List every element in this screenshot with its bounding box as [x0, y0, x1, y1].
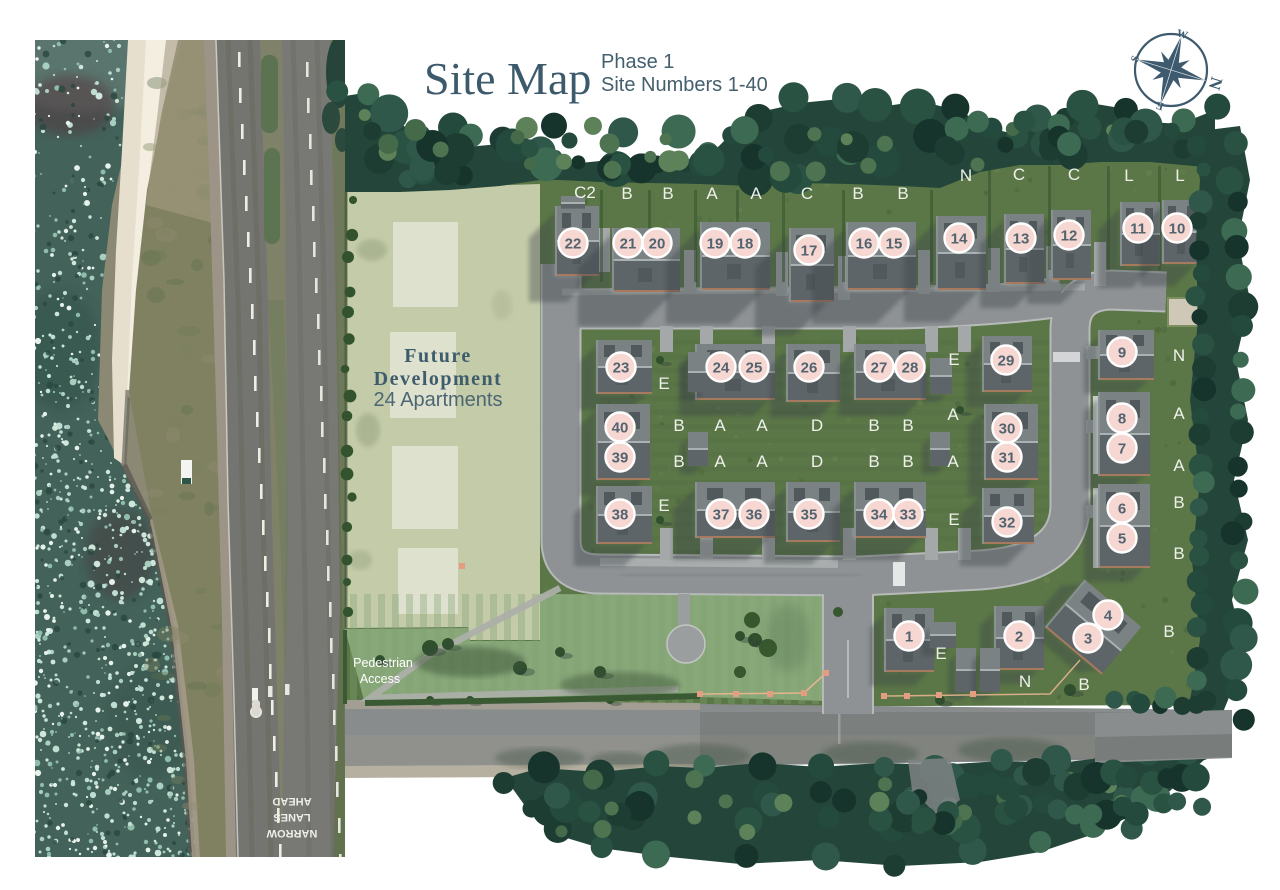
- svg-text:C2: C2: [574, 183, 596, 202]
- svg-text:8: 8: [1118, 411, 1126, 428]
- svg-text:24: 24: [713, 360, 730, 377]
- svg-text:Access: Access: [360, 672, 400, 686]
- svg-text:N: N: [1019, 672, 1031, 691]
- svg-text:E: E: [658, 496, 669, 515]
- svg-text:18: 18: [737, 236, 754, 253]
- svg-text:B: B: [1173, 544, 1184, 563]
- svg-text:16: 16: [856, 236, 873, 253]
- svg-text:30: 30: [999, 421, 1016, 438]
- svg-text:B: B: [897, 184, 908, 203]
- svg-text:B: B: [673, 416, 684, 435]
- svg-text:B: B: [902, 452, 913, 471]
- svg-text:B: B: [1078, 675, 1089, 694]
- svg-text:B: B: [1163, 622, 1174, 641]
- svg-text:A: A: [750, 184, 762, 203]
- svg-text:E: E: [935, 644, 946, 663]
- svg-text:11: 11: [1130, 221, 1146, 238]
- svg-text:C: C: [801, 184, 813, 203]
- svg-text:A: A: [756, 452, 768, 471]
- svg-text:25: 25: [746, 360, 763, 377]
- svg-text:5: 5: [1118, 531, 1126, 548]
- svg-text:34: 34: [871, 507, 888, 524]
- svg-text:A: A: [714, 452, 726, 471]
- svg-text:B: B: [868, 452, 879, 471]
- svg-text:19: 19: [707, 236, 724, 253]
- svg-text:20: 20: [649, 236, 666, 253]
- svg-text:23: 23: [613, 360, 630, 377]
- svg-text:28: 28: [902, 360, 919, 377]
- svg-text:39: 39: [612, 450, 629, 467]
- svg-text:32: 32: [999, 515, 1016, 532]
- svg-text:AHEAD: AHEAD: [272, 795, 311, 807]
- svg-text:A: A: [1173, 404, 1185, 423]
- svg-text:35: 35: [801, 507, 818, 524]
- svg-text:B: B: [673, 452, 684, 471]
- svg-text:Future: Future: [404, 345, 472, 367]
- svg-text:7: 7: [1118, 441, 1126, 458]
- svg-text:B: B: [662, 184, 673, 203]
- svg-text:A: A: [1173, 456, 1185, 475]
- svg-text:N: N: [960, 166, 972, 185]
- svg-text:E: E: [948, 350, 959, 369]
- svg-text:37: 37: [713, 507, 730, 524]
- svg-text:2: 2: [1015, 629, 1023, 646]
- svg-text:33: 33: [900, 507, 917, 524]
- svg-text:D: D: [811, 452, 823, 471]
- svg-text:A: A: [714, 416, 726, 435]
- svg-text:Site Map: Site Map: [424, 53, 591, 104]
- svg-text:14: 14: [951, 231, 968, 248]
- svg-text:1: 1: [905, 629, 913, 646]
- svg-text:10: 10: [1169, 221, 1186, 238]
- svg-text:Phase 1: Phase 1: [601, 51, 674, 73]
- svg-text:C: C: [1068, 165, 1080, 184]
- svg-text:A: A: [947, 452, 959, 471]
- svg-text:Development: Development: [374, 368, 503, 390]
- svg-text:D: D: [811, 416, 823, 435]
- svg-text:29: 29: [998, 353, 1015, 370]
- svg-text:4: 4: [1104, 608, 1113, 625]
- svg-text:31: 31: [999, 450, 1016, 467]
- svg-text:Site Numbers 1-40: Site Numbers 1-40: [601, 74, 768, 96]
- svg-text:17: 17: [801, 243, 818, 260]
- svg-text:E: E: [658, 374, 669, 393]
- svg-text:LANES: LANES: [273, 811, 310, 823]
- svg-text:24 Apartments: 24 Apartments: [374, 389, 503, 411]
- svg-text:15: 15: [886, 236, 903, 253]
- svg-text:A: A: [706, 184, 718, 203]
- svg-text:9: 9: [1118, 345, 1126, 362]
- svg-text:L: L: [1175, 166, 1184, 185]
- svg-text:E: E: [948, 510, 959, 529]
- svg-text:12: 12: [1061, 228, 1078, 245]
- svg-text:N: N: [1173, 346, 1185, 365]
- svg-text:NARROW: NARROW: [266, 827, 317, 839]
- svg-text:A: A: [947, 405, 959, 424]
- svg-text:B: B: [868, 416, 879, 435]
- svg-text:40: 40: [612, 420, 629, 437]
- svg-text:A: A: [756, 416, 768, 435]
- svg-text:B: B: [902, 416, 913, 435]
- svg-text:B: B: [621, 184, 632, 203]
- svg-text:26: 26: [801, 360, 818, 377]
- svg-text:B: B: [1173, 493, 1184, 512]
- svg-text:L: L: [1124, 166, 1133, 185]
- svg-text:22: 22: [565, 236, 582, 253]
- svg-text:36: 36: [746, 507, 763, 524]
- svg-text:B: B: [852, 184, 863, 203]
- svg-text:Pedestrian: Pedestrian: [353, 656, 413, 670]
- svg-text:21: 21: [620, 236, 637, 253]
- svg-text:6: 6: [1118, 501, 1126, 518]
- svg-text:38: 38: [612, 507, 629, 524]
- svg-text:3: 3: [1084, 631, 1092, 648]
- svg-text:C: C: [1013, 165, 1025, 184]
- svg-text:13: 13: [1013, 231, 1030, 248]
- svg-text:27: 27: [871, 360, 888, 377]
